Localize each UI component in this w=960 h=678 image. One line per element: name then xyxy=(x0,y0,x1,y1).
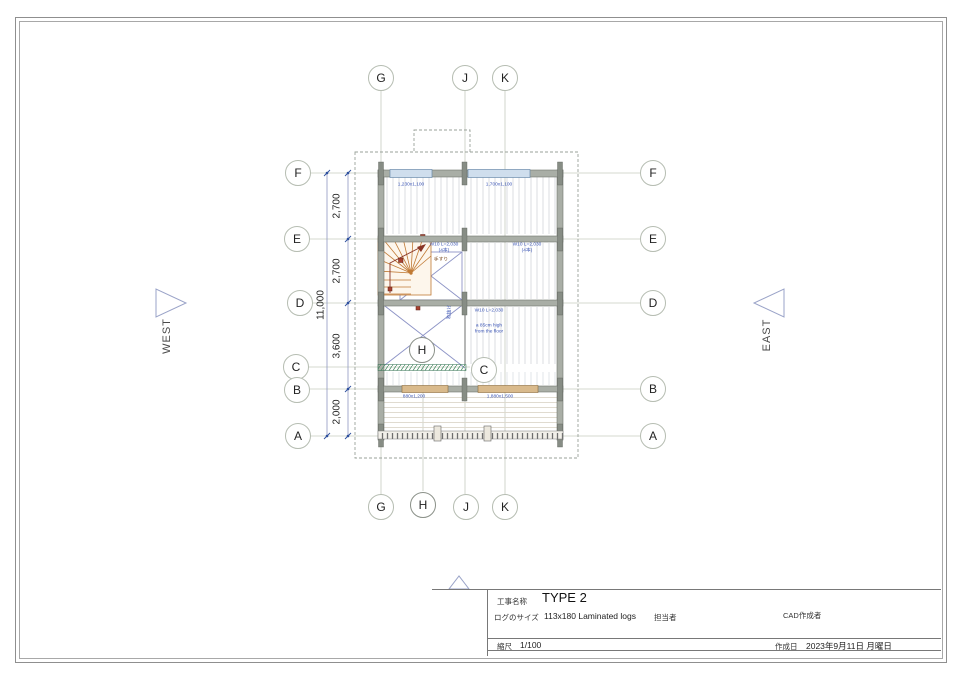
wall-e-left-line2: (4本) xyxy=(430,247,459,253)
wall-e-right-line1: W10 L=2,030 xyxy=(513,241,542,247)
scale-label: 縮尺 xyxy=(497,641,512,652)
dim-e-d: 2,700 xyxy=(332,258,343,283)
grid-bubble-left-d: D xyxy=(287,290,313,316)
wall-d-label: W10 L=2,030 xyxy=(475,307,504,313)
grid-bubble-right-e: E xyxy=(640,226,666,252)
north-window-left-label: 1,230x1,100 xyxy=(398,181,424,187)
dim-b-a: 2,000 xyxy=(332,399,343,424)
titleblock-divider-line xyxy=(487,638,941,639)
grid-bubble-inner-h: H xyxy=(409,337,435,363)
east-arrow-icon xyxy=(754,289,784,317)
scale-value: 1/100 xyxy=(520,640,541,650)
project-name-value: TYPE 2 xyxy=(542,590,587,605)
handrail-c xyxy=(378,365,466,371)
grid-bubble-right-b: B xyxy=(640,376,666,402)
handrail-label: 手すり xyxy=(434,256,448,262)
project-name-label: 工事名称 xyxy=(497,596,527,607)
grid-bubble-bottom-j: J xyxy=(453,494,479,520)
south-window-left-label: 880x1,200 xyxy=(403,393,425,399)
dim-d-b: 3,600 xyxy=(332,333,343,358)
south-window-right-label: 1,880x1,500 xyxy=(487,393,513,399)
grid-bubble-right-d: D xyxy=(640,290,666,316)
log-size-label: ログのサイズ xyxy=(494,612,539,623)
grid-bubble-left-b: B xyxy=(284,377,310,403)
log-size-value: 113x180 Laminated logs xyxy=(544,611,636,621)
grid-bubble-right-a: A xyxy=(640,423,666,449)
grid-bubble-bottom-h: H xyxy=(410,492,436,518)
grid-bubble-left-f: F xyxy=(285,160,311,186)
grid-bubble-bottom-k: K xyxy=(492,494,518,520)
grid-bubble-top-j: J xyxy=(452,65,478,91)
dim-total: 11,000 xyxy=(316,290,327,320)
grid-bubble-inner-c: C xyxy=(471,357,497,383)
void-label: 吹抜け xyxy=(446,305,453,319)
grid-bubble-left-e: E xyxy=(284,226,310,252)
titleblock-left-line xyxy=(487,589,488,656)
date-value: 2023年9月11日 月曜日 xyxy=(806,640,892,652)
floor-note-line2: from the floor xyxy=(475,328,503,334)
section-mark-icon xyxy=(449,576,469,589)
grid-bubble-top-k: K xyxy=(492,65,518,91)
wall-e-right-line2: (4本) xyxy=(513,247,542,253)
floor-note-line1: a 85cm high xyxy=(475,322,503,328)
grid-bubble-right-f: F xyxy=(640,160,666,186)
cad-author-label: CAD作成者 xyxy=(783,610,821,621)
floor-note: a 85cm high from the floor xyxy=(475,322,503,334)
dim-f-e: 2,700 xyxy=(332,193,343,218)
wall-e-right-label: W10 L=2,030 (4本) xyxy=(513,241,542,253)
grid-bubble-bottom-g: G xyxy=(368,494,394,520)
west-arrow-icon xyxy=(156,289,186,317)
grid-bubble-top-g: G xyxy=(368,65,394,91)
drawing-sheet: G J K G H J K F E D C B A F E D B A H C … xyxy=(0,0,960,678)
wall-e-left-line1: W10 L=2,030 xyxy=(430,241,459,247)
grid-bubble-left-a: A xyxy=(285,423,311,449)
floor-plan-drawing xyxy=(0,0,960,678)
titleblock-top-line xyxy=(432,589,941,590)
date-label: 作成日 xyxy=(775,641,798,652)
staff-label: 担当者 xyxy=(654,612,677,623)
wall-e-left-label: W10 L=2,030 (4本) xyxy=(430,241,459,253)
north-window-right-label: 1,700x1,100 xyxy=(486,181,512,187)
